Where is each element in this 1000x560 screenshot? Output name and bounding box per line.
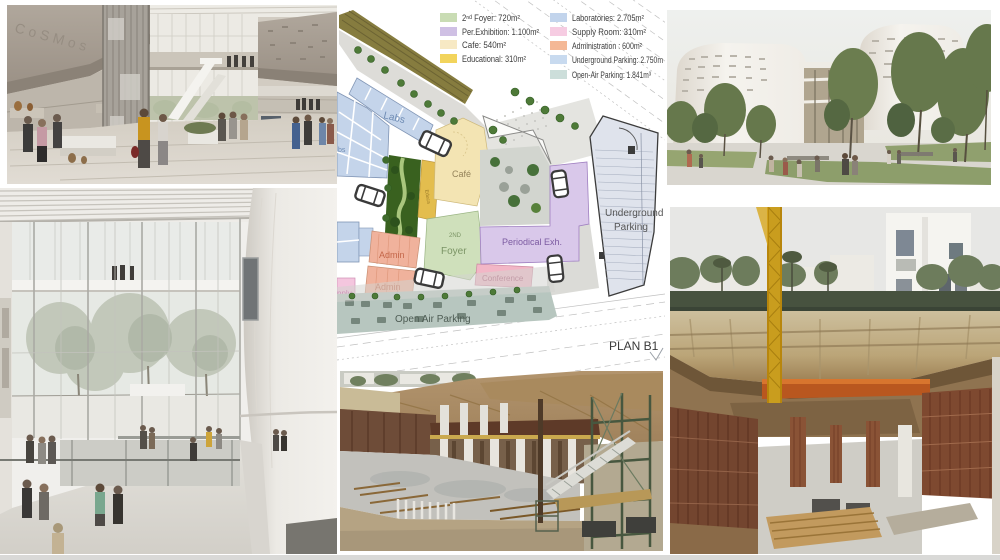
svg-text:Periodical Exh.: Periodical Exh. xyxy=(502,237,562,247)
svg-text:Administration : 600m²: Administration : 600m² xyxy=(572,41,642,51)
svg-text:Parking: Parking xyxy=(614,222,648,233)
svg-text:Underground: Underground xyxy=(605,208,663,219)
svg-text:Cafe: 540m²: Cafe: 540m² xyxy=(462,40,506,50)
svg-text:2ⁿᵈ Foyer: 720m²: 2ⁿᵈ Foyer: 720m² xyxy=(462,13,520,23)
svg-text:PLAN B1: PLAN B1 xyxy=(609,339,659,353)
svg-text:Supply Room: 310m²: Supply Room: 310m² xyxy=(572,27,646,37)
svg-text:Foyer: Foyer xyxy=(441,246,467,257)
svg-text:Admin: Admin xyxy=(379,250,405,260)
svg-text:Per.Exhibition: 1.100m²: Per.Exhibition: 1.100m² xyxy=(462,27,539,37)
svg-text:2ND: 2ND xyxy=(449,233,462,239)
svg-text:Underground Parking: 2.750m: Underground Parking: 2.750m xyxy=(572,55,663,65)
svg-text:Café: Café xyxy=(452,169,471,179)
svg-text:Open-Air Parking: 1.841m³: Open-Air Parking: 1.841m³ xyxy=(572,70,651,80)
svg-text:Open Air Parking: Open Air Parking xyxy=(395,314,471,325)
svg-text:bs: bs xyxy=(338,147,346,154)
svg-text:Educational: 310m²: Educational: 310m² xyxy=(462,54,526,64)
svg-text:Laboratories: 2.705m²: Laboratories: 2.705m² xyxy=(572,13,644,23)
